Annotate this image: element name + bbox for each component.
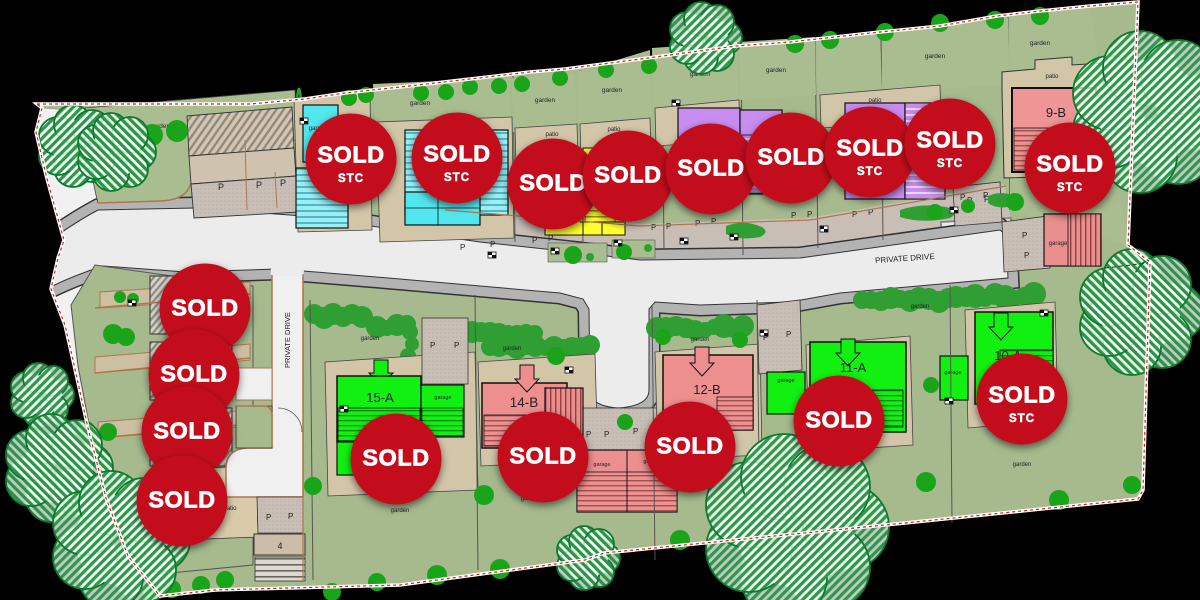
svg-text:garage: garage <box>1049 241 1068 247</box>
svg-text:P: P <box>586 430 591 439</box>
svg-text:P: P <box>454 341 459 350</box>
svg-text:garden: garden <box>925 53 946 60</box>
svg-text:garden: garden <box>766 67 787 74</box>
svg-text:SOLD: SOLD <box>677 155 744 181</box>
svg-text:SOLD: SOLD <box>836 135 903 161</box>
svg-text:SOLD: SOLD <box>757 144 824 170</box>
svg-text:garage: garage <box>777 378 794 384</box>
svg-text:SOLD: SOLD <box>317 142 384 168</box>
svg-text:P: P <box>548 234 553 243</box>
svg-text:SOLD: SOLD <box>509 443 576 469</box>
svg-text:P: P <box>288 512 293 521</box>
svg-text:P: P <box>218 182 224 192</box>
svg-text:P: P <box>651 223 656 232</box>
svg-text:SOLD: SOLD <box>171 295 238 321</box>
svg-text:P: P <box>460 243 465 252</box>
svg-text:P: P <box>711 217 716 226</box>
svg-text:P: P <box>266 513 271 522</box>
svg-text:P: P <box>256 180 262 190</box>
svg-text:P: P <box>666 222 671 231</box>
svg-text:P: P <box>786 330 791 339</box>
svg-text:PRIVATE DRIVE: PRIVATE DRIVE <box>283 312 292 368</box>
svg-text:garden: garden <box>535 97 556 104</box>
svg-text:garden: garden <box>691 337 710 343</box>
svg-text:garden: garden <box>1030 40 1051 47</box>
svg-text:garden: garden <box>503 346 522 352</box>
svg-text:STC: STC <box>338 173 364 185</box>
svg-text:P: P <box>633 427 638 436</box>
svg-text:garden: garden <box>410 100 431 107</box>
svg-text:SOLD: SOLD <box>153 418 220 444</box>
svg-text:P: P <box>1022 231 1027 240</box>
svg-text:SOLD: SOLD <box>1036 151 1103 177</box>
svg-text:15-A: 15-A <box>366 390 394 405</box>
svg-text:SOLD: SOLD <box>362 445 429 471</box>
svg-text:STC: STC <box>444 172 470 184</box>
svg-text:12-B: 12-B <box>693 382 720 397</box>
svg-text:garage: garage <box>593 462 610 468</box>
svg-text:garden: garden <box>602 87 623 94</box>
svg-text:11-A: 11-A <box>840 360 867 375</box>
svg-text:garage: garage <box>944 370 961 376</box>
svg-text:garden: garden <box>1013 462 1032 468</box>
svg-text:STC: STC <box>1057 182 1083 194</box>
svg-text:garage: garage <box>434 395 451 401</box>
svg-text:SOLD: SOLD <box>916 127 983 153</box>
svg-text:STC: STC <box>937 158 963 170</box>
svg-text:SOLD: SOLD <box>423 141 490 167</box>
svg-text:P: P <box>280 178 286 188</box>
svg-text:P: P <box>791 211 796 220</box>
svg-text:P: P <box>1024 251 1029 260</box>
svg-text:SOLD: SOLD <box>160 361 227 387</box>
svg-text:P: P <box>430 341 435 350</box>
svg-text:SOLD: SOLD <box>148 487 215 513</box>
svg-text:P: P <box>807 210 812 219</box>
svg-text:SOLD: SOLD <box>805 407 872 433</box>
svg-text:patio: patio <box>545 132 559 138</box>
svg-text:STC: STC <box>1009 413 1035 425</box>
svg-text:garden: garden <box>911 304 930 310</box>
svg-text:SOLD: SOLD <box>519 170 586 196</box>
svg-text:4: 4 <box>277 541 282 551</box>
svg-text:P: P <box>490 240 495 249</box>
svg-text:patio: patio <box>1045 74 1059 80</box>
svg-text:garden: garden <box>361 336 380 342</box>
svg-text:SOLD: SOLD <box>594 162 661 188</box>
svg-text:STC: STC <box>857 166 883 178</box>
svg-text:P: P <box>604 430 609 439</box>
svg-text:9-B: 9-B <box>1046 105 1066 120</box>
svg-text:garden: garden <box>391 508 410 514</box>
svg-text:SOLD: SOLD <box>988 382 1055 408</box>
svg-text:SOLD: SOLD <box>656 433 723 459</box>
svg-text:P: P <box>532 236 537 245</box>
svg-text:14-B: 14-B <box>510 395 539 410</box>
